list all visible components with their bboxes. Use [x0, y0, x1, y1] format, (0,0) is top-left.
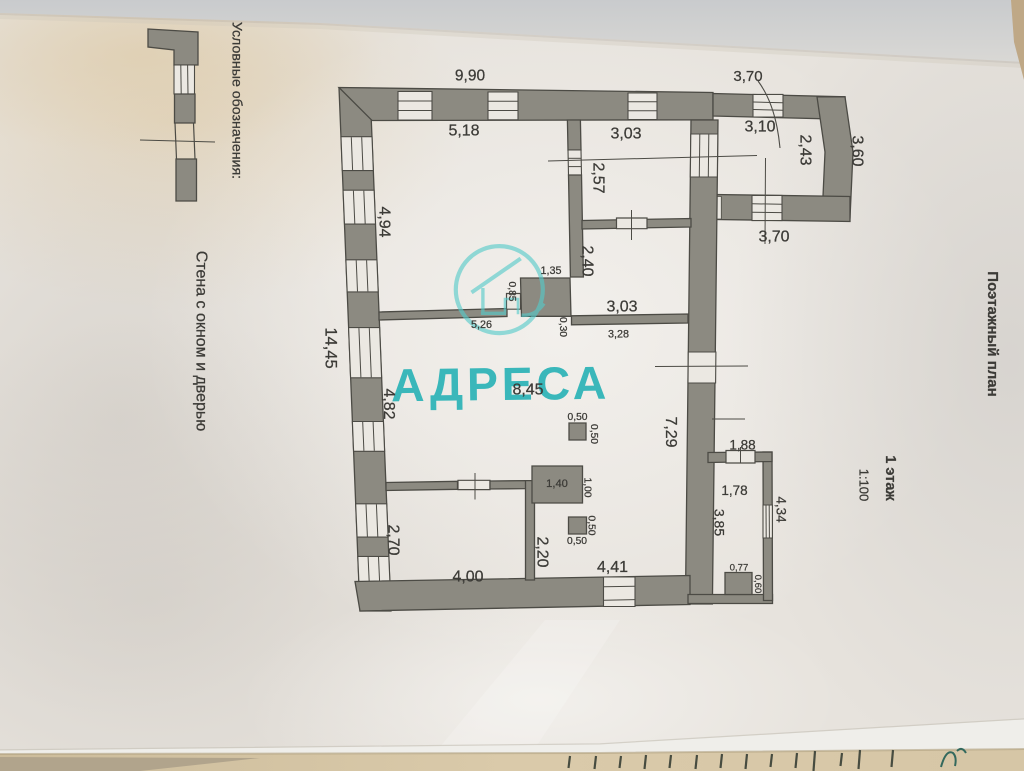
svg-text:0,60: 0,60 — [752, 575, 763, 594]
svg-text:Стена с окном и дверью: Стена с окном и дверью — [192, 251, 209, 431]
svg-text:0,50: 0,50 — [588, 424, 599, 444]
svg-text:0,77: 0,77 — [730, 562, 749, 573]
svg-text:4,82: 4,82 — [380, 388, 397, 419]
svg-text:1,00: 1,00 — [581, 477, 592, 497]
svg-text:0,85: 0,85 — [506, 281, 517, 301]
svg-text:4,41: 4,41 — [597, 559, 628, 576]
svg-text:4,00: 4,00 — [452, 568, 483, 585]
svg-text:1,40: 1,40 — [546, 478, 568, 490]
svg-text:АДРЕСА: АДРЕСА — [391, 357, 611, 412]
svg-text:3,60: 3,60 — [848, 135, 865, 166]
svg-text:5,26: 5,26 — [471, 319, 492, 331]
svg-text:2,57: 2,57 — [589, 162, 606, 193]
svg-text:3,70: 3,70 — [758, 228, 789, 245]
svg-text:1:100: 1:100 — [857, 469, 872, 502]
svg-text:3,03: 3,03 — [606, 298, 637, 315]
svg-text:2,40: 2,40 — [578, 245, 595, 276]
svg-text:8,45: 8,45 — [512, 381, 543, 398]
svg-text:1,35: 1,35 — [540, 265, 561, 277]
svg-text:2,43: 2,43 — [796, 134, 813, 165]
svg-text:3,28: 3,28 — [608, 329, 629, 341]
svg-text:3,10: 3,10 — [744, 118, 775, 135]
svg-text:14,45: 14,45 — [321, 327, 339, 368]
svg-text:0,30: 0,30 — [557, 317, 568, 337]
svg-text:1 этаж: 1 этаж — [882, 455, 898, 501]
svg-text:4,34: 4,34 — [773, 496, 788, 523]
svg-text:Условные обозначения:: Условные обозначения: — [229, 22, 245, 179]
svg-text:3,85: 3,85 — [712, 509, 728, 536]
svg-text:0,50: 0,50 — [567, 412, 587, 423]
svg-text:2,70: 2,70 — [384, 524, 401, 555]
svg-text:Поэтажный план: Поэтажный план — [984, 271, 1001, 396]
svg-text:4,94: 4,94 — [375, 206, 392, 237]
svg-text:0,50: 0,50 — [567, 536, 587, 547]
svg-text:5,18: 5,18 — [448, 122, 479, 139]
svg-text:3,70: 3,70 — [733, 68, 762, 85]
svg-text:2,20: 2,20 — [533, 536, 550, 567]
svg-text:1,78: 1,78 — [721, 483, 747, 498]
svg-text:9,90: 9,90 — [455, 67, 486, 84]
svg-text:7,29: 7,29 — [662, 416, 679, 447]
svg-text:1,88: 1,88 — [729, 438, 755, 453]
svg-text:3,03: 3,03 — [610, 125, 641, 142]
svg-text:0,50: 0,50 — [585, 515, 596, 535]
